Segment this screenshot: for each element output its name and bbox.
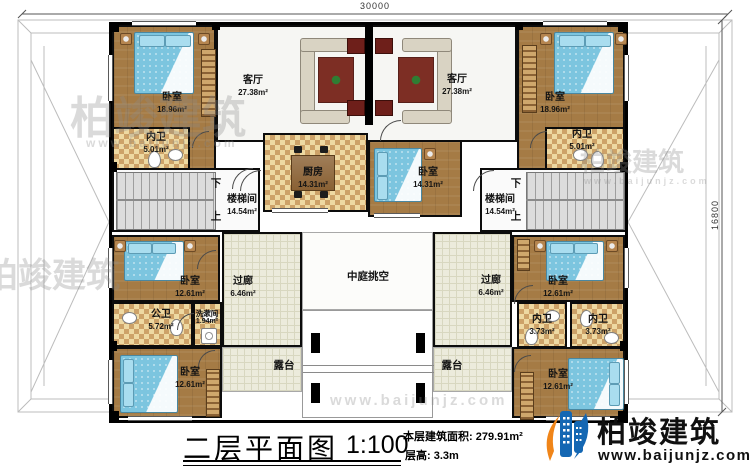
window	[624, 248, 629, 288]
pillow	[165, 35, 191, 47]
porch-rail	[303, 365, 434, 366]
pillow	[128, 243, 152, 254]
window	[108, 248, 113, 288]
nightstand	[540, 33, 552, 45]
brand-website: www.baijunjz.com	[598, 447, 750, 464]
tv-cabinet	[347, 38, 365, 54]
pillow	[559, 35, 585, 47]
wall-pier	[212, 22, 220, 30]
window	[108, 360, 113, 404]
stair-right-up-label: 上	[511, 210, 522, 223]
wardrobe	[520, 372, 534, 420]
tv-cabinet	[347, 100, 365, 116]
room-label-bath-right-1: 内卫3.73m²	[529, 314, 554, 337]
window	[624, 55, 629, 101]
room-label-atrium: 中庭挑空	[347, 270, 389, 283]
chair	[294, 191, 302, 198]
wall-pier	[620, 162, 628, 172]
tv-cabinet	[375, 38, 393, 54]
room-label-bedroom-mid-right: 卧室12.61m²	[543, 276, 573, 299]
stair-left-up-label: 上	[211, 210, 222, 223]
floor-height-text: 层高: 3.3m	[405, 447, 459, 463]
pillow	[152, 243, 176, 254]
sink-icon	[122, 312, 137, 324]
stair-rail	[116, 199, 214, 201]
pillow	[574, 243, 598, 254]
nightstand	[615, 33, 627, 45]
building-outline: 卧室18.96m² 客厅27.38m² 客厅27.38m²	[109, 22, 628, 423]
sofa	[402, 110, 452, 124]
room-label-stairwell-left: 楼梯间14.54m²	[227, 194, 257, 217]
toilet-icon	[591, 151, 604, 168]
rug	[398, 57, 434, 103]
washing-machine-icon	[201, 328, 217, 344]
room-label-corridor-right: 过廊6.46m²	[478, 275, 503, 298]
rug	[318, 57, 354, 103]
dimension-top-label: 30000	[360, 1, 390, 11]
wall-pier	[109, 22, 119, 32]
nightstand	[184, 240, 196, 252]
stairs	[116, 172, 216, 230]
window	[108, 55, 113, 101]
wall-pier	[618, 22, 628, 32]
dimension-right-label: 16800	[710, 200, 720, 230]
brand-logo-icon	[540, 405, 594, 467]
stairs	[526, 172, 625, 230]
window	[272, 208, 328, 213]
room-label-bath-top-right: 内卫5.01m²	[569, 129, 594, 152]
room-label-bedroom-top-left: 卧室18.96m²	[157, 92, 187, 115]
room-label-corridor-left: 过廊6.46m²	[230, 276, 255, 299]
pillow	[123, 383, 134, 407]
nightstand	[424, 148, 436, 160]
chair	[320, 146, 328, 153]
wall-pier	[515, 22, 523, 30]
column	[311, 333, 320, 353]
room-label-living-right: 客厅27.38m²	[442, 74, 472, 97]
wardrobe	[517, 239, 530, 271]
sink-icon	[168, 149, 183, 161]
stair-left-down-label: 下	[211, 177, 222, 190]
pillow	[609, 362, 620, 384]
room-label-bedroom-mid-left: 卧室12.61m²	[175, 276, 205, 299]
window	[132, 21, 196, 26]
sofa	[300, 42, 315, 119]
room-label-bath-top-left: 内卫5.01m²	[143, 132, 168, 155]
column	[416, 333, 425, 353]
window	[374, 213, 420, 218]
room-label-terrace-left: 露台	[274, 359, 295, 372]
wardrobe	[522, 45, 537, 113]
drawing-scale: 1:100	[346, 431, 409, 460]
room-label-bedroom-bottom-left: 卧室12.61m²	[175, 367, 205, 390]
nightstand	[606, 240, 618, 252]
sofa	[300, 38, 350, 52]
room-label-living-left: 客厅27.38m²	[238, 75, 268, 98]
floorplan-canvas: 30000 16800 卧室18.96m² 客厅27.38m²	[0, 0, 750, 473]
pillow	[139, 35, 165, 47]
pillow	[609, 384, 620, 406]
nightstand	[120, 33, 132, 45]
floor-area-text: 本层建筑面积: 279.91m²	[403, 428, 523, 444]
tv-cabinet	[375, 100, 393, 116]
pillow	[377, 152, 388, 176]
room-label-bath-right-2: 内卫3.73m²	[585, 314, 610, 337]
column	[416, 383, 425, 403]
wardrobe	[201, 49, 216, 117]
wall-pier	[109, 341, 117, 351]
window	[128, 416, 192, 421]
pillow	[123, 359, 134, 383]
nightstand	[198, 33, 210, 45]
stair-right-down-label: 下	[511, 177, 522, 190]
door-arc	[473, 170, 494, 191]
room-label-bedroom-center: 卧室14.31m²	[413, 167, 443, 190]
porch-canopy	[302, 310, 433, 418]
wall-pier	[109, 411, 119, 421]
stair-rail	[526, 199, 623, 201]
sofa	[300, 110, 350, 124]
porch-rail	[303, 372, 434, 373]
room-label-washroom: 洗漱间1.94m²	[196, 309, 219, 327]
tv-divider-wall	[365, 22, 373, 125]
nightstand	[114, 240, 126, 252]
wall-pier	[109, 162, 117, 172]
chair	[294, 146, 302, 153]
brand-name: 柏竣建筑	[597, 409, 721, 451]
window	[543, 21, 607, 26]
window	[624, 360, 629, 404]
pillow	[585, 35, 611, 47]
pillow	[377, 176, 388, 200]
nightstand	[534, 240, 546, 252]
column	[311, 383, 320, 403]
room-label-bath-public: 公卫5.72m²	[148, 309, 173, 332]
room-label-bedroom-bottom-right: 卧室12.61m²	[543, 369, 573, 392]
room-label-terrace-right: 露台	[442, 359, 463, 372]
pillow	[550, 243, 574, 254]
title-underline	[183, 460, 401, 466]
room-label-bedroom-top-right: 卧室18.96m²	[540, 92, 570, 115]
chair	[320, 191, 328, 198]
wardrobe	[206, 369, 220, 417]
room-label-kitchen: 厨房14.31m²	[298, 167, 328, 190]
wall-pier	[620, 341, 628, 351]
sofa	[402, 38, 452, 52]
